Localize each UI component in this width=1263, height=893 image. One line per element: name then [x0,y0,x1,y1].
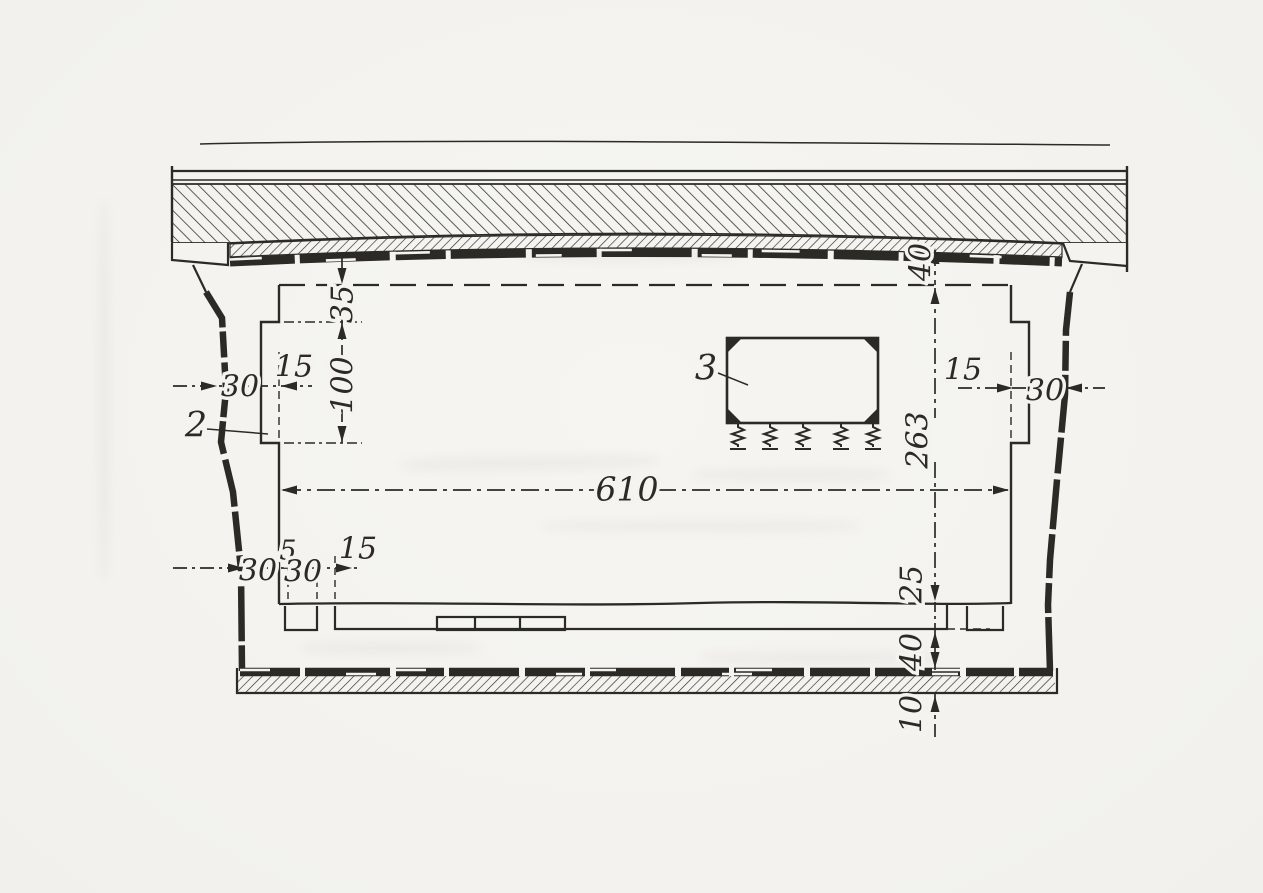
spring-icon [762,424,778,449]
right-corbel [1063,243,1127,292]
bottom-slab [237,668,1057,693]
ground-line [200,141,1110,145]
roof-slab [172,184,1127,265]
dim-floor-slab: 25 [895,565,930,604]
spring-icon [833,424,849,449]
arrow-down [931,585,940,601]
arrow-right [993,486,1009,495]
arrow-right [201,382,217,391]
vibration-springs [730,424,881,449]
dim-recess-depth-right: 15 [944,353,982,388]
floor-left-foot [285,606,317,630]
machine-unit [727,338,881,449]
floor [279,602,1011,630]
arrow-up [931,696,940,712]
dim-left-wall: 30 [221,370,259,405]
callout-machine: 3 [695,348,717,388]
right-wall-inner-face [1011,285,1029,604]
dim-left-wall-lower: 30 [239,554,277,589]
arrow-up [338,323,347,339]
corner-gusset [863,408,878,423]
left-corbel [172,243,228,292]
arrow-down [338,426,347,442]
leader-line [207,429,268,434]
arrow-up [931,632,940,648]
dim-roof-slab: 40 [904,243,939,282]
bottom-slab-hatch [237,676,1055,692]
dim-interior-width: 610 [596,470,659,509]
right-wall [1011,285,1070,671]
corner-gusset [727,408,742,423]
dim-interior-height: 263 [901,411,936,469]
machine-box [727,338,878,423]
dim-recess-top-offset: 35 [326,285,361,323]
left-wall [206,285,279,671]
roof-slab-hatch [172,184,1127,243]
dim-recess-depth-left: 15 [275,350,313,385]
floor-right-foot [967,606,1003,630]
arrow-up [931,288,940,304]
dimension-texts: 40 263 25 40 10 35 100 30 15 15 30 610 3… [184,243,1064,733]
spring-icon [730,424,746,449]
dim-right-wall: 30 [1026,374,1064,409]
left-wall-outer-lining [206,292,242,671]
dim-base-layer: 10 [895,695,930,733]
leader-line [718,373,748,385]
spring-icon [795,424,811,449]
dim-recess-height: 100 [326,356,361,413]
dim-plinth-offset: 15 [339,532,377,567]
arrow-left [281,486,297,495]
scanned-engineering-drawing: 40 263 25 40 10 35 100 30 15 15 30 610 3… [0,0,1263,893]
dim-underfloor-space: 40 [895,633,930,672]
dim-plinth-width: 30 [284,555,322,590]
duct-cross-section: 40 263 25 40 10 35 100 30 15 15 30 610 3… [0,0,1263,893]
spring-icon [865,424,881,449]
corner-gusset [727,338,742,353]
arrow-down [931,652,940,668]
arrow-down [338,268,347,284]
callout-wall-lining: 2 [184,405,207,445]
floor-underside-line [335,605,947,629]
corner-gusset [863,338,878,353]
right-wall-outer-lining [1048,292,1070,671]
